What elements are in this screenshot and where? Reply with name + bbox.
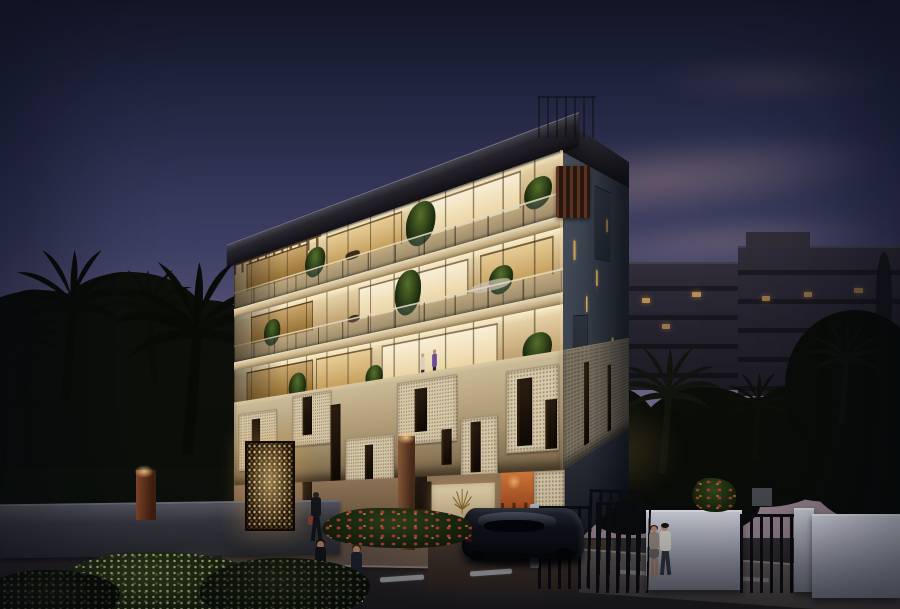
rooftop-pergola <box>556 166 590 218</box>
mosaic-slot <box>517 377 532 446</box>
white-wall-segment <box>812 514 900 598</box>
dusk-residence-rendering: VILLA SORAYA <box>0 0 900 609</box>
glowing-perforated-entry-screen <box>245 441 295 531</box>
car-wheel <box>470 550 484 561</box>
wall-pillar <box>794 508 814 592</box>
vine-on-wall <box>692 478 736 512</box>
mosaic-slot <box>471 421 481 472</box>
vine-flowers <box>692 478 736 512</box>
car-wheel <box>556 548 572 560</box>
parked-sports-car <box>462 508 584 566</box>
driveway-gate-tall <box>586 489 651 590</box>
mosaic-slot <box>365 444 373 479</box>
mosaic-slot <box>415 387 427 432</box>
pedestrian-at-entrance <box>308 492 326 544</box>
tropical-flower-bed <box>322 508 472 548</box>
shrub-foreground <box>200 558 370 609</box>
red-flowers <box>322 508 472 548</box>
mosaic-slot <box>330 404 340 481</box>
mosaic-slot <box>545 399 557 450</box>
black-metal-gate <box>740 514 796 593</box>
mosaic-slot <box>303 396 312 435</box>
car-rear-window <box>484 520 544 532</box>
dim-window-behind-wall <box>752 488 772 506</box>
couple-by-wall <box>648 524 674 582</box>
mosaic-slot <box>441 429 451 465</box>
rooftop-railing <box>538 96 596 138</box>
terracotta-gate-pillar <box>136 470 156 520</box>
downlight-glow <box>507 474 521 490</box>
